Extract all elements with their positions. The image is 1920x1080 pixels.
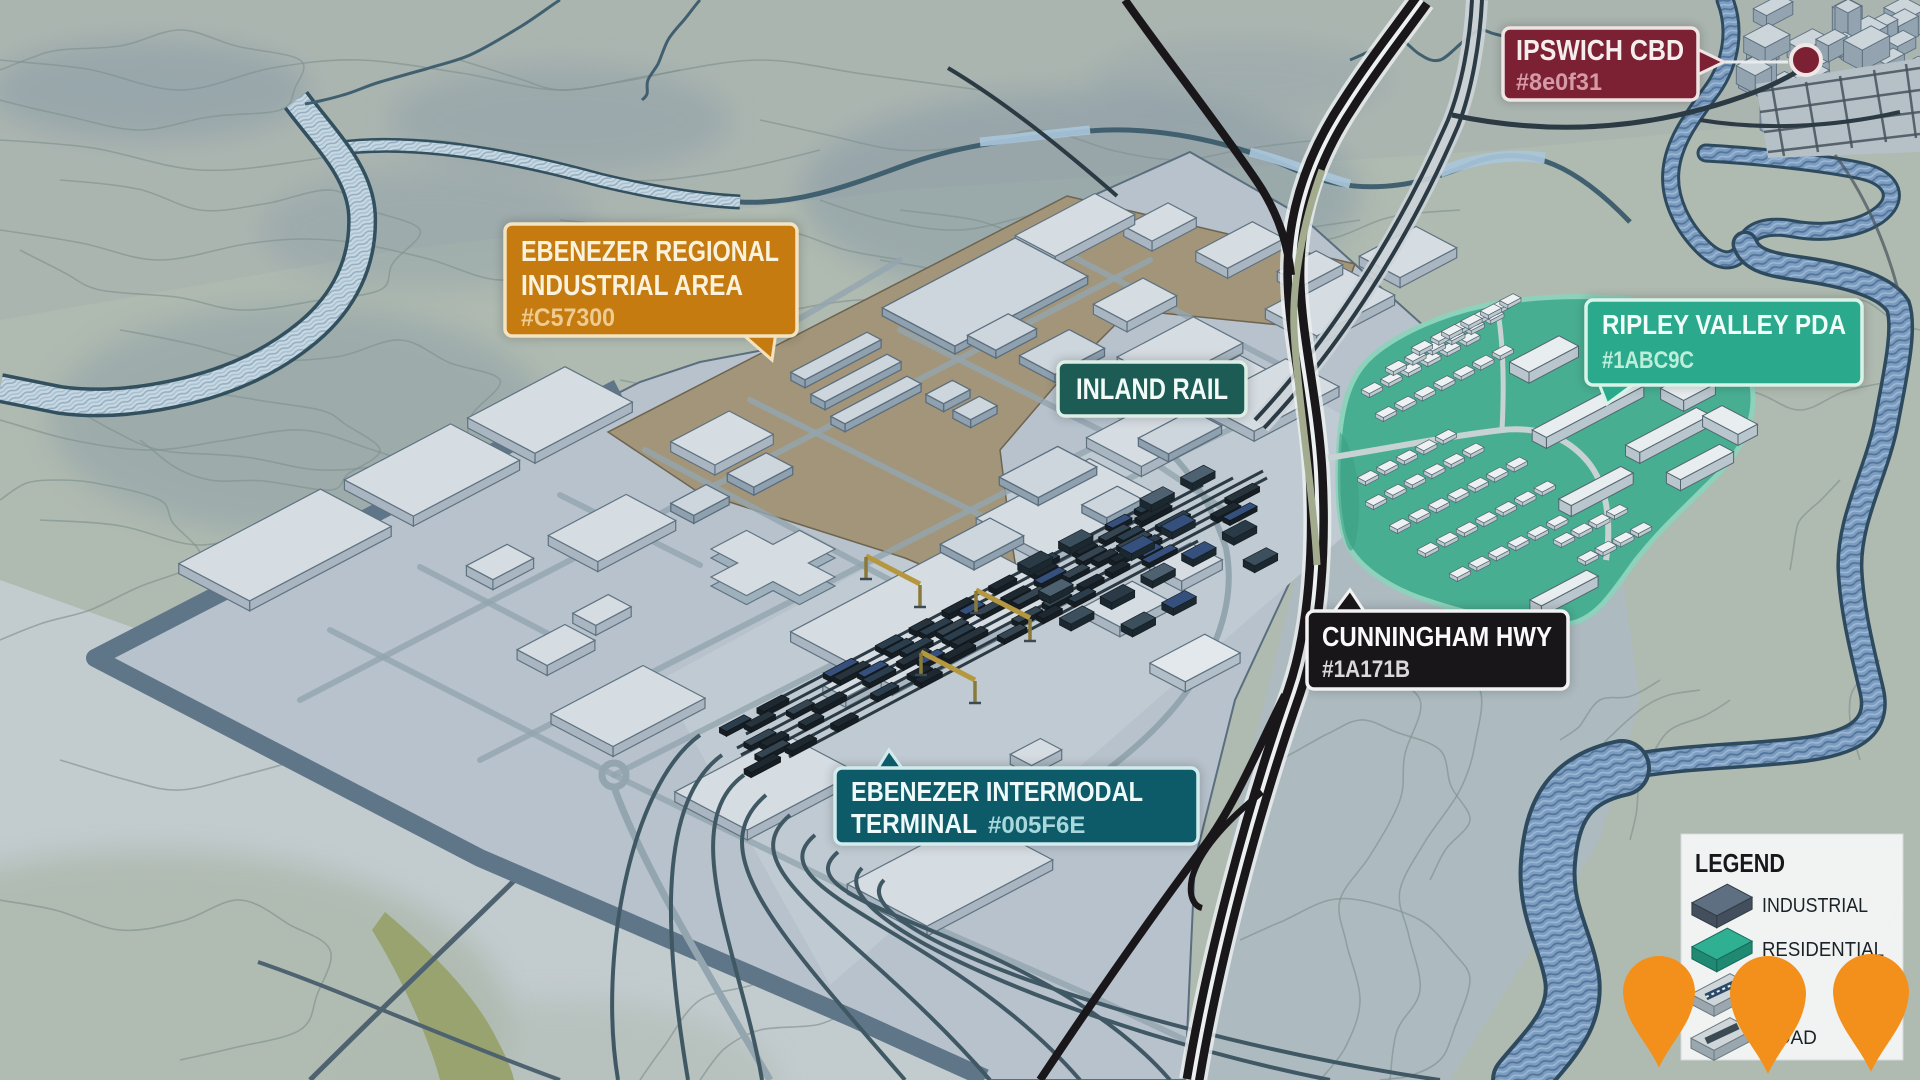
- svg-text:INLAND RAIL: INLAND RAIL: [1076, 373, 1228, 406]
- svg-text:INDUSTRIAL: INDUSTRIAL: [1762, 895, 1868, 917]
- svg-text:#1ABC9C: #1ABC9C: [1602, 347, 1694, 374]
- svg-text:#C57300: #C57300: [521, 304, 615, 332]
- svg-text:RIPLEY VALLEY PDA: RIPLEY VALLEY PDA: [1602, 309, 1846, 340]
- svg-text:#005F6E: #005F6E: [988, 812, 1085, 839]
- svg-text:IPSWICH CBD: IPSWICH CBD: [1516, 35, 1684, 67]
- svg-text:EBENEZER INTERMODAL: EBENEZER INTERMODAL: [851, 776, 1143, 807]
- svg-text:CUNNINGHAM HWY: CUNNINGHAM HWY: [1322, 621, 1552, 652]
- svg-text:#1A171B: #1A171B: [1322, 656, 1410, 683]
- svg-text:INDUSTRIAL AREA: INDUSTRIAL AREA: [521, 270, 743, 302]
- svg-text:TERMINAL: TERMINAL: [851, 808, 977, 839]
- svg-text:LEGEND: LEGEND: [1695, 848, 1785, 878]
- svg-text:#8e0f31: #8e0f31: [1516, 69, 1602, 96]
- svg-text:EBENEZER REGIONAL: EBENEZER REGIONAL: [521, 236, 779, 268]
